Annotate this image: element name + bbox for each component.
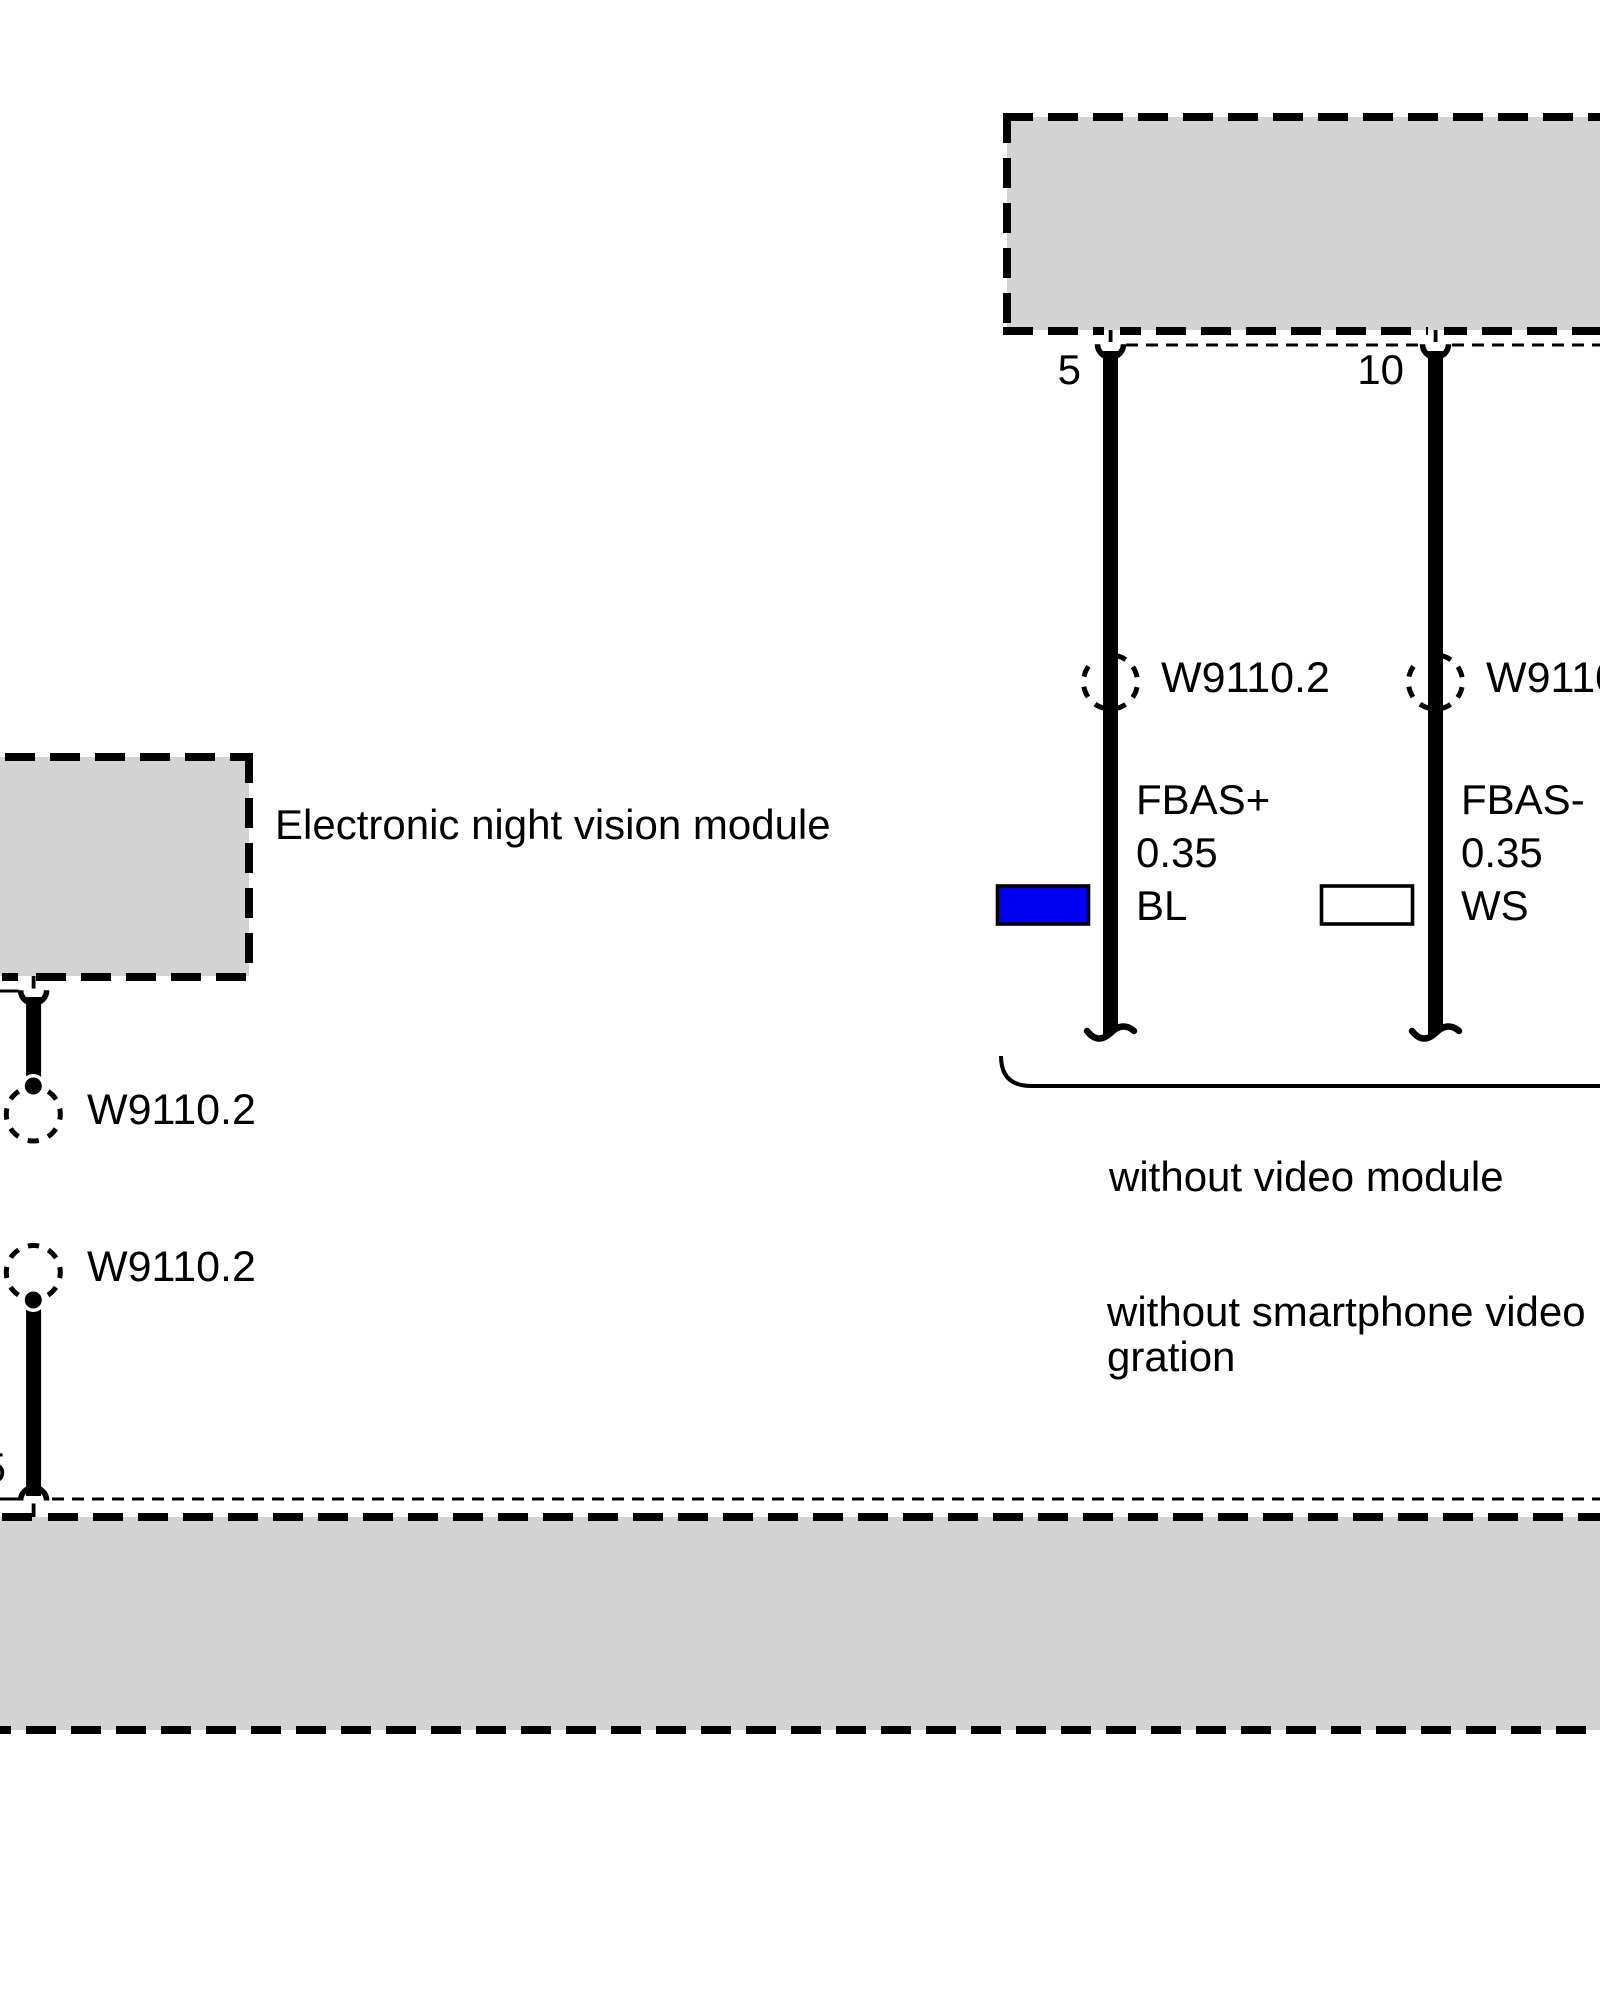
svg-text:W9110.2: W9110.2: [87, 1086, 256, 1134]
svg-text:without video module: without video module: [1108, 1153, 1504, 1200]
svg-text:FBAS+: FBAS+: [1136, 776, 1270, 823]
svg-text:5: 5: [1058, 346, 1081, 393]
svg-text:0.35: 0.35: [1461, 829, 1543, 876]
svg-text:without smartphone video: without smartphone video: [1106, 1288, 1586, 1335]
svg-text:W9110.2: W9110.2: [87, 1243, 256, 1291]
svg-text:Electronic night vision module: Electronic night vision module: [275, 801, 831, 848]
svg-text:W9110.2: W9110.2: [1486, 654, 1600, 702]
svg-text:BL: BL: [1136, 882, 1187, 929]
svg-text:FBAS-: FBAS-: [1461, 776, 1585, 823]
svg-text:10: 10: [1357, 346, 1404, 393]
svg-text:WS: WS: [1461, 882, 1529, 929]
svg-text:0.35: 0.35: [1136, 829, 1218, 876]
svg-text:W9110.2: W9110.2: [1161, 654, 1330, 702]
svg-text:gration: gration: [1107, 1333, 1235, 1380]
svg-text:5: 5: [0, 1444, 6, 1491]
